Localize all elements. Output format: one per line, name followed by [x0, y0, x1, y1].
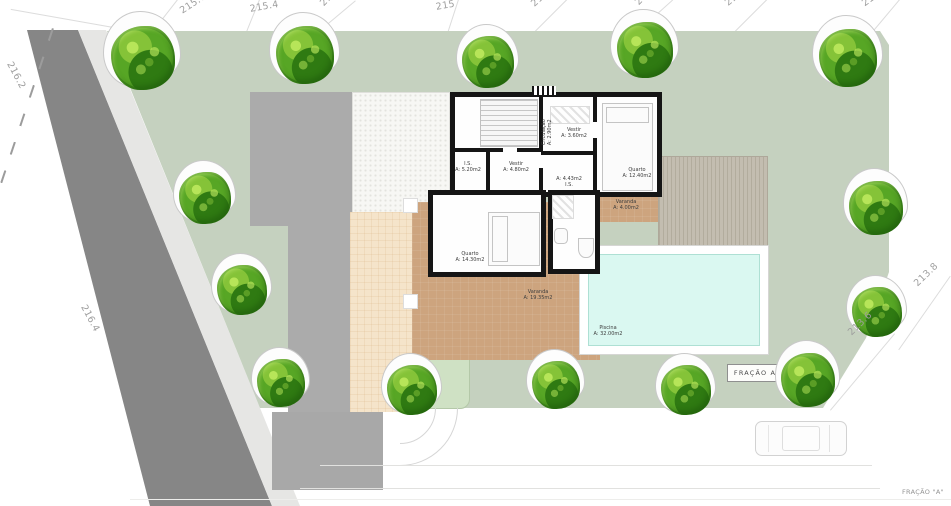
- car-cabin: [782, 426, 820, 451]
- fracao-label: FRAÇÃO A: [734, 369, 776, 377]
- contour-elevation-label: 215.6: [178, 0, 208, 16]
- car-trunk-line: [768, 425, 769, 452]
- frame-line: [130, 499, 951, 500]
- car-hood-line: [829, 425, 830, 452]
- terrace-pillar: [404, 295, 417, 308]
- toilet: [578, 238, 594, 258]
- terrace-pillar: [404, 199, 417, 212]
- contour-line: [898, 276, 950, 350]
- wood-deck: [658, 156, 768, 246]
- interior-wall: [517, 148, 541, 152]
- fracao-label-box: FRAÇÃO A: [727, 364, 783, 382]
- bed: [602, 103, 653, 191]
- sink: [554, 228, 568, 244]
- bed: [488, 212, 540, 266]
- sidewalk-line: [320, 465, 872, 466]
- driveway-apron: [272, 412, 383, 490]
- vent-hatch: [532, 86, 556, 95]
- interior-wall: [539, 168, 543, 195]
- contour-line: [11, 9, 115, 28]
- contour-elevation-label: 213.8: [912, 261, 941, 289]
- bed-pillow: [606, 107, 649, 123]
- contour-elevation-label: 214.2: [860, 0, 890, 9]
- interior-wall: [593, 138, 597, 195]
- corner-note: FRAÇÃO "A": [880, 488, 944, 496]
- contour-elevation-label: 214.6: [633, 0, 661, 8]
- driveway: [288, 226, 352, 412]
- wardrobe-hatch: [550, 106, 590, 124]
- contour-elevation-label: 216.4: [78, 303, 101, 334]
- contour-elevation-label: 216.2: [4, 60, 27, 91]
- interior-wall: [593, 97, 597, 122]
- contour-elevation-label: 214.4: [723, 0, 752, 8]
- interior-wall: [455, 148, 503, 152]
- site-plan-drawing: FRAÇÃO A FRAÇÃO "A" 216.2216.4215.6215.4…: [0, 0, 951, 506]
- car: [755, 421, 847, 456]
- contour-elevation-label: 215.2: [318, 0, 346, 9]
- pool-water: [588, 254, 760, 346]
- interior-wall: [539, 97, 543, 152]
- shower: [552, 195, 574, 219]
- interior-wall: [486, 150, 490, 195]
- contour-elevation-label: 214.8: [529, 0, 558, 9]
- sidewalk-line: [300, 488, 880, 489]
- garage-pad: [250, 92, 352, 226]
- contour-elevation-label: 215: [435, 0, 456, 13]
- stairs: [480, 99, 538, 147]
- bed-pillow: [492, 216, 508, 262]
- tiled-walkway: [350, 212, 412, 412]
- interior-wall: [541, 151, 595, 155]
